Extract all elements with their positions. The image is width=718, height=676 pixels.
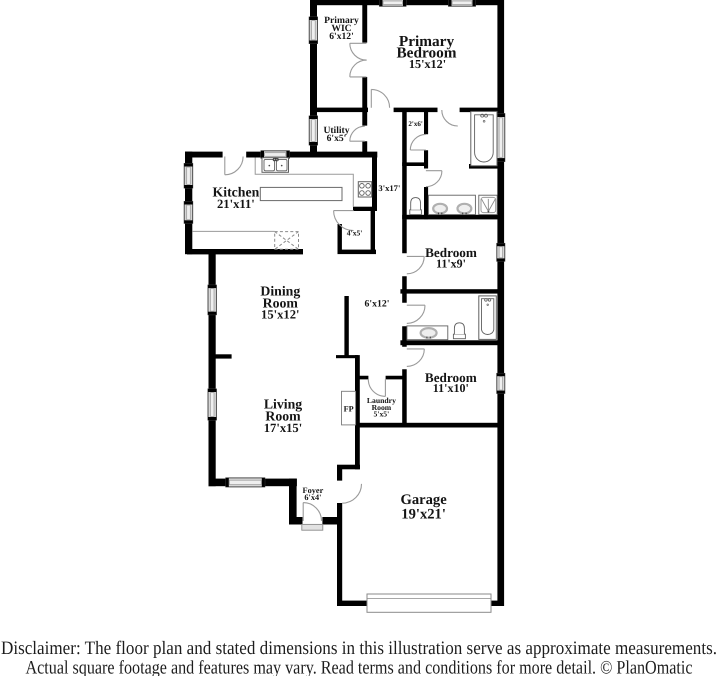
svg-text:6'x12': 6'x12' bbox=[329, 31, 354, 42]
svg-text:FP: FP bbox=[344, 404, 354, 413]
svg-text:21'x11': 21'x11' bbox=[217, 197, 255, 211]
svg-text:4'x5': 4'x5' bbox=[347, 229, 363, 238]
svg-text:19'x21': 19'x21' bbox=[401, 507, 446, 523]
svg-text:2'x6': 2'x6' bbox=[408, 120, 422, 128]
svg-text:15'x12': 15'x12' bbox=[409, 57, 446, 71]
svg-text:3'x17': 3'x17' bbox=[378, 183, 400, 193]
svg-text:Actual square footage and feat: Actual square footage and features may v… bbox=[26, 657, 693, 676]
svg-text:Garage: Garage bbox=[400, 492, 447, 508]
svg-text:5'x5': 5'x5' bbox=[373, 409, 389, 418]
svg-text:15'x12': 15'x12' bbox=[261, 308, 299, 322]
svg-text:6'x4': 6'x4' bbox=[304, 493, 321, 502]
svg-text:17'x15': 17'x15' bbox=[264, 421, 302, 435]
svg-text:11'x9': 11'x9' bbox=[436, 257, 466, 271]
svg-text:6'x5': 6'x5' bbox=[327, 133, 347, 144]
svg-text:Disclaimer: The floor plan and: Disclaimer: The floor plan and stated di… bbox=[1, 638, 717, 659]
svg-text:11'x10': 11'x10' bbox=[433, 381, 469, 395]
svg-text:6'x12': 6'x12' bbox=[364, 299, 389, 310]
